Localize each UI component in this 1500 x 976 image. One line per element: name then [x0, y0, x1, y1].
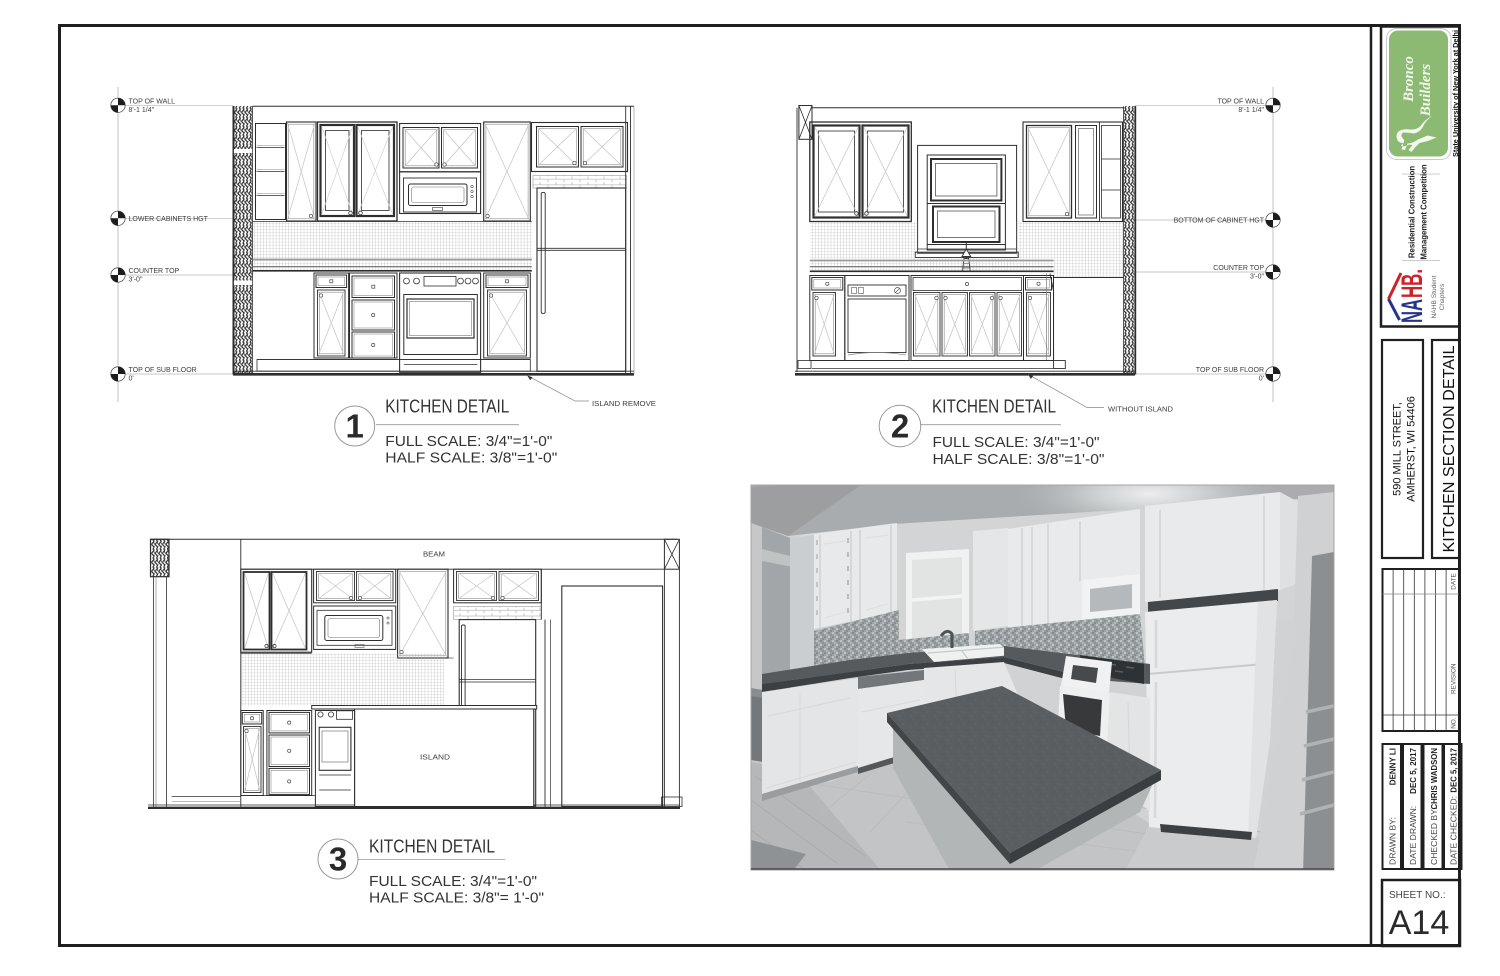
svg-text:8'-1 1/4": 8'-1 1/4" [129, 107, 155, 114]
svg-text:WITHOUT ISLAND: WITHOUT ISLAND [1108, 407, 1173, 414]
svg-text:3: 3 [329, 841, 347, 878]
svg-text:DATE DRAWN:: DATE DRAWN: [1408, 806, 1418, 865]
svg-text:State University of New York a: State University of New York at Delhi [1451, 30, 1460, 157]
svg-text:Management Competition: Management Competition [1420, 164, 1429, 260]
svg-text:FULL SCALE: 3/4"=1'-0": FULL SCALE: 3/4"=1'-0" [385, 434, 552, 450]
svg-text:LOWER CABINETS HGT: LOWER CABINETS HGT [129, 216, 209, 223]
svg-text:KITCHEN SECTION DETAIL: KITCHEN SECTION DETAIL [1441, 345, 1458, 552]
svg-text:DEC 5, 2017: DEC 5, 2017 [1450, 748, 1459, 793]
svg-text:Chapters: Chapters [1439, 283, 1446, 310]
svg-text:AMHERST, WI 54406: AMHERST, WI 54406 [1406, 396, 1418, 502]
svg-text:Residential Construction: Residential Construction [1408, 166, 1417, 259]
svg-text:DATE: DATE [1451, 573, 1458, 590]
svg-text:A14: A14 [1389, 904, 1450, 942]
svg-text:COUNTER TOP: COUNTER TOP [1213, 265, 1264, 272]
svg-text:KITCHEN DETAIL: KITCHEN DETAIL [369, 836, 495, 857]
svg-text:ISLAND: ISLAND [420, 753, 450, 762]
svg-text:HALF SCALE: 3/8"=1'-0": HALF SCALE: 3/8"=1'-0" [385, 451, 557, 467]
svg-text:HALF SCALE: 3/8"=1'-0": HALF SCALE: 3/8"=1'-0" [933, 452, 1105, 468]
svg-text:Builders: Builders [1418, 64, 1434, 118]
svg-text:DRAWN BY:: DRAWN BY: [1388, 817, 1398, 865]
svg-text:CHRIS WADSON: CHRIS WADSON [1430, 748, 1439, 810]
svg-text:SHEET NO.:: SHEET NO.: [1389, 890, 1446, 901]
svg-text:TOP OF WALL: TOP OF WALL [129, 99, 176, 106]
svg-text:TOP OF SUB FLOOR: TOP OF SUB FLOOR [1196, 367, 1264, 374]
svg-text:REVISION: REVISION [1451, 663, 1458, 694]
svg-text:DATE CHECKED:: DATE CHECKED: [1449, 796, 1459, 865]
svg-text:DENNY LI: DENNY LI [1389, 748, 1398, 785]
svg-text:BOTTOM OF CABINET HGT: BOTTOM OF CABINET HGT [1174, 218, 1265, 225]
svg-text:NAHB Student: NAHB Student [1431, 275, 1438, 318]
svg-text:NA: NA [1396, 299, 1429, 323]
svg-text:2: 2 [891, 408, 909, 445]
svg-text:HALF SCALE: 3/8"= 1'-0": HALF SCALE: 3/8"= 1'-0" [369, 891, 544, 907]
svg-text:8'-1 1/4": 8'-1 1/4" [1238, 107, 1264, 114]
svg-text:TOP OF WALL: TOP OF WALL [1217, 99, 1264, 106]
svg-text:ISLAND REMOVE: ISLAND REMOVE [592, 401, 656, 408]
svg-text:TOP OF SUB FLOOR: TOP OF SUB FLOOR [129, 367, 197, 374]
svg-text:DEC 5, 2017: DEC 5, 2017 [1409, 747, 1418, 793]
svg-text:NO.: NO. [1451, 717, 1458, 729]
svg-text:0': 0' [129, 376, 134, 383]
svg-text:CHECKED BY:: CHECKED BY: [1429, 807, 1439, 865]
svg-text:590 MILL STREET,: 590 MILL STREET, [1392, 402, 1404, 496]
svg-text:1: 1 [346, 408, 364, 445]
svg-text:KITCHEN DETAIL: KITCHEN DETAIL [932, 396, 1056, 417]
svg-text:0': 0' [1259, 376, 1264, 383]
svg-text:Bronco: Bronco [1401, 56, 1417, 103]
svg-text:BEAM: BEAM [423, 552, 445, 559]
svg-text:COUNTER TOP: COUNTER TOP [129, 268, 180, 275]
svg-text:3'-0": 3'-0" [1250, 274, 1264, 281]
svg-text:KITCHEN DETAIL: KITCHEN DETAIL [385, 396, 509, 417]
svg-text:FULL SCALE: 3/4"=1'-0": FULL SCALE: 3/4"=1'-0" [933, 435, 1100, 451]
svg-text:3'-0": 3'-0" [129, 277, 143, 284]
svg-text:FULL SCALE: 3/4"=1'-0": FULL SCALE: 3/4"=1'-0" [369, 874, 537, 890]
